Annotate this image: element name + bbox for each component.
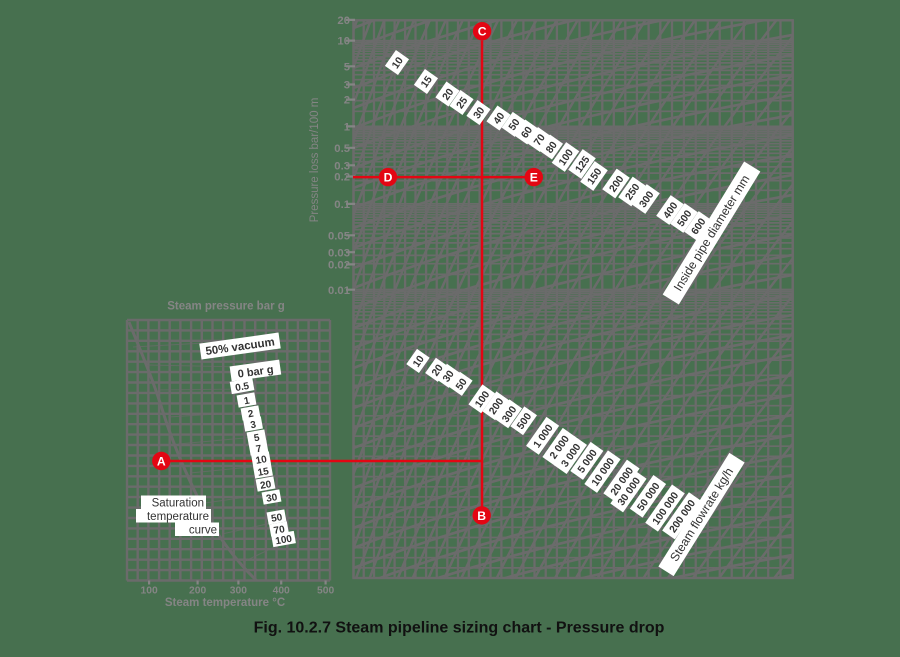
svg-text:0.03: 0.03 [328,247,350,259]
svg-text:0.2: 0.2 [334,172,350,184]
svg-text:3: 3 [344,80,350,92]
svg-text:0.5: 0.5 [334,143,350,155]
svg-text:Pressure loss bar/100 m: Pressure loss bar/100 m [309,98,321,223]
svg-text:400: 400 [273,586,290,597]
svg-text:10: 10 [337,36,350,48]
svg-text:A: A [157,454,166,468]
svg-text:Fig. 10.2.7 Steam pipeline siz: Fig. 10.2.7 Steam pipeline sizing chart … [254,620,665,637]
svg-text:Saturation: Saturation [152,498,204,510]
svg-text:0.3: 0.3 [334,160,350,172]
svg-text:Steam temperature °C: Steam temperature °C [165,597,285,609]
svg-text:C: C [478,25,487,39]
svg-text:curve: curve [189,525,217,537]
svg-text:0.05: 0.05 [328,230,350,242]
svg-text:E: E [530,170,538,184]
svg-text:0.1: 0.1 [334,199,350,211]
svg-text:temperature: temperature [147,511,209,523]
svg-text:300: 300 [230,586,247,597]
svg-text:2: 2 [344,95,350,107]
svg-text:1: 1 [344,122,350,134]
svg-text:B: B [477,509,486,523]
svg-text:0.01: 0.01 [328,285,350,297]
svg-text:0.02: 0.02 [328,260,350,272]
svg-text:100: 100 [141,586,158,597]
svg-text:200: 200 [189,586,206,597]
svg-text:5: 5 [344,61,350,73]
svg-text:500: 500 [317,586,334,597]
svg-text:D: D [384,170,393,184]
svg-text:Steam pressure bar g: Steam pressure bar g [167,301,285,313]
svg-text:20: 20 [337,15,350,27]
